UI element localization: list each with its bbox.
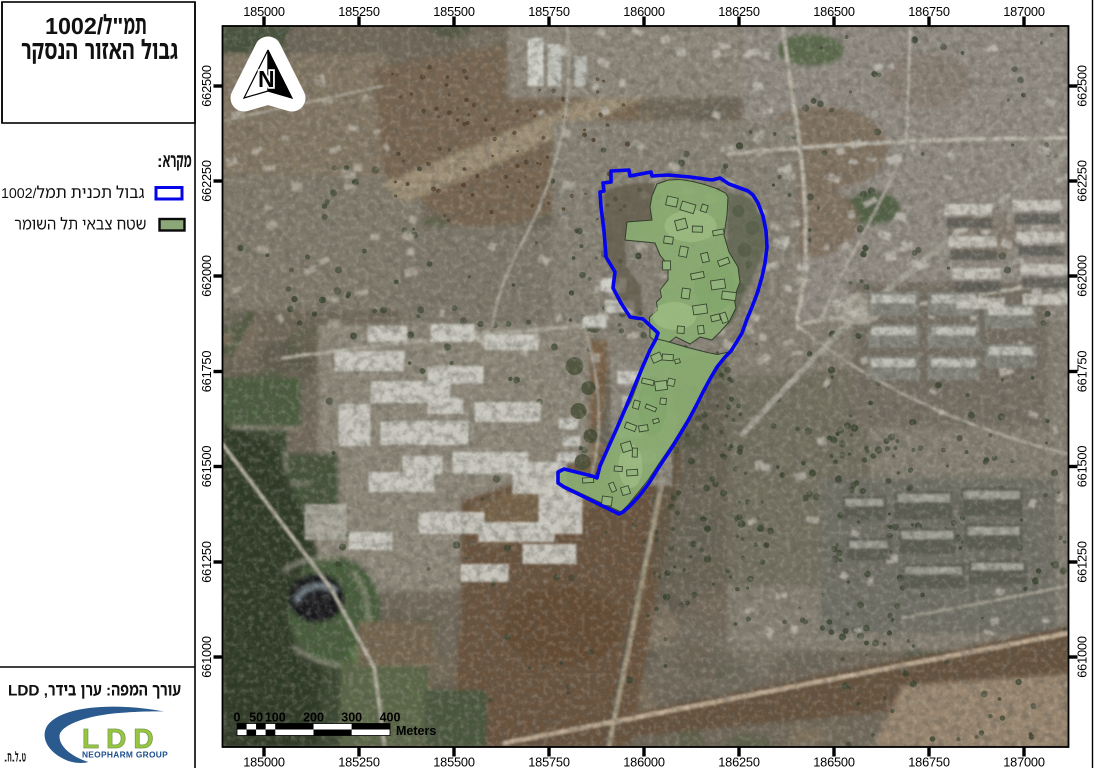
svg-text:186500: 186500 <box>813 755 855 768</box>
svg-text:185250: 185250 <box>338 4 380 19</box>
svg-text:0: 0 <box>234 711 241 725</box>
svg-text:662000: 662000 <box>1075 255 1090 297</box>
svg-text:186000: 186000 <box>623 4 665 19</box>
svg-text:661500: 661500 <box>199 446 214 488</box>
svg-text:185750: 185750 <box>528 4 570 19</box>
svg-text:186500: 186500 <box>813 4 855 19</box>
svg-text:186000: 186000 <box>623 755 665 768</box>
svg-text:185750: 185750 <box>528 755 570 768</box>
svg-text:661250: 661250 <box>1075 541 1090 583</box>
svg-text:185000: 185000 <box>243 4 285 19</box>
svg-text:400: 400 <box>380 711 401 725</box>
svg-text:661500: 661500 <box>1075 446 1090 488</box>
svg-text:100: 100 <box>265 711 286 725</box>
svg-text:185000: 185000 <box>243 755 285 768</box>
svg-text:186750: 186750 <box>908 755 950 768</box>
svg-text:661750: 661750 <box>199 351 214 393</box>
svg-text:661000: 661000 <box>1075 636 1090 678</box>
svg-text:50: 50 <box>249 711 263 725</box>
svg-text:187000: 187000 <box>1003 755 1045 768</box>
svg-text:NEOPHARM GROUP: NEOPHARM GROUP <box>82 750 168 760</box>
svg-text:300: 300 <box>341 711 362 725</box>
svg-text:187000: 187000 <box>1003 4 1045 19</box>
svg-text:Meters: Meters <box>396 724 436 738</box>
svg-text:185500: 185500 <box>433 755 475 768</box>
svg-text:662500: 662500 <box>199 65 214 107</box>
svg-text:662250: 662250 <box>199 160 214 202</box>
svg-text:662250: 662250 <box>1075 160 1090 202</box>
svg-text:185500: 185500 <box>433 4 475 19</box>
svg-text:186250: 186250 <box>718 4 760 19</box>
svg-text:200: 200 <box>303 711 324 725</box>
svg-text:N: N <box>258 66 275 92</box>
svg-text:186750: 186750 <box>908 4 950 19</box>
svg-text:662500: 662500 <box>1075 65 1090 107</box>
svg-text:661750: 661750 <box>1075 351 1090 393</box>
svg-text:661250: 661250 <box>199 541 214 583</box>
svg-text:185250: 185250 <box>338 755 380 768</box>
svg-text:662000: 662000 <box>199 255 214 297</box>
svg-text:186250: 186250 <box>718 755 760 768</box>
svg-text:661000: 661000 <box>199 636 214 678</box>
